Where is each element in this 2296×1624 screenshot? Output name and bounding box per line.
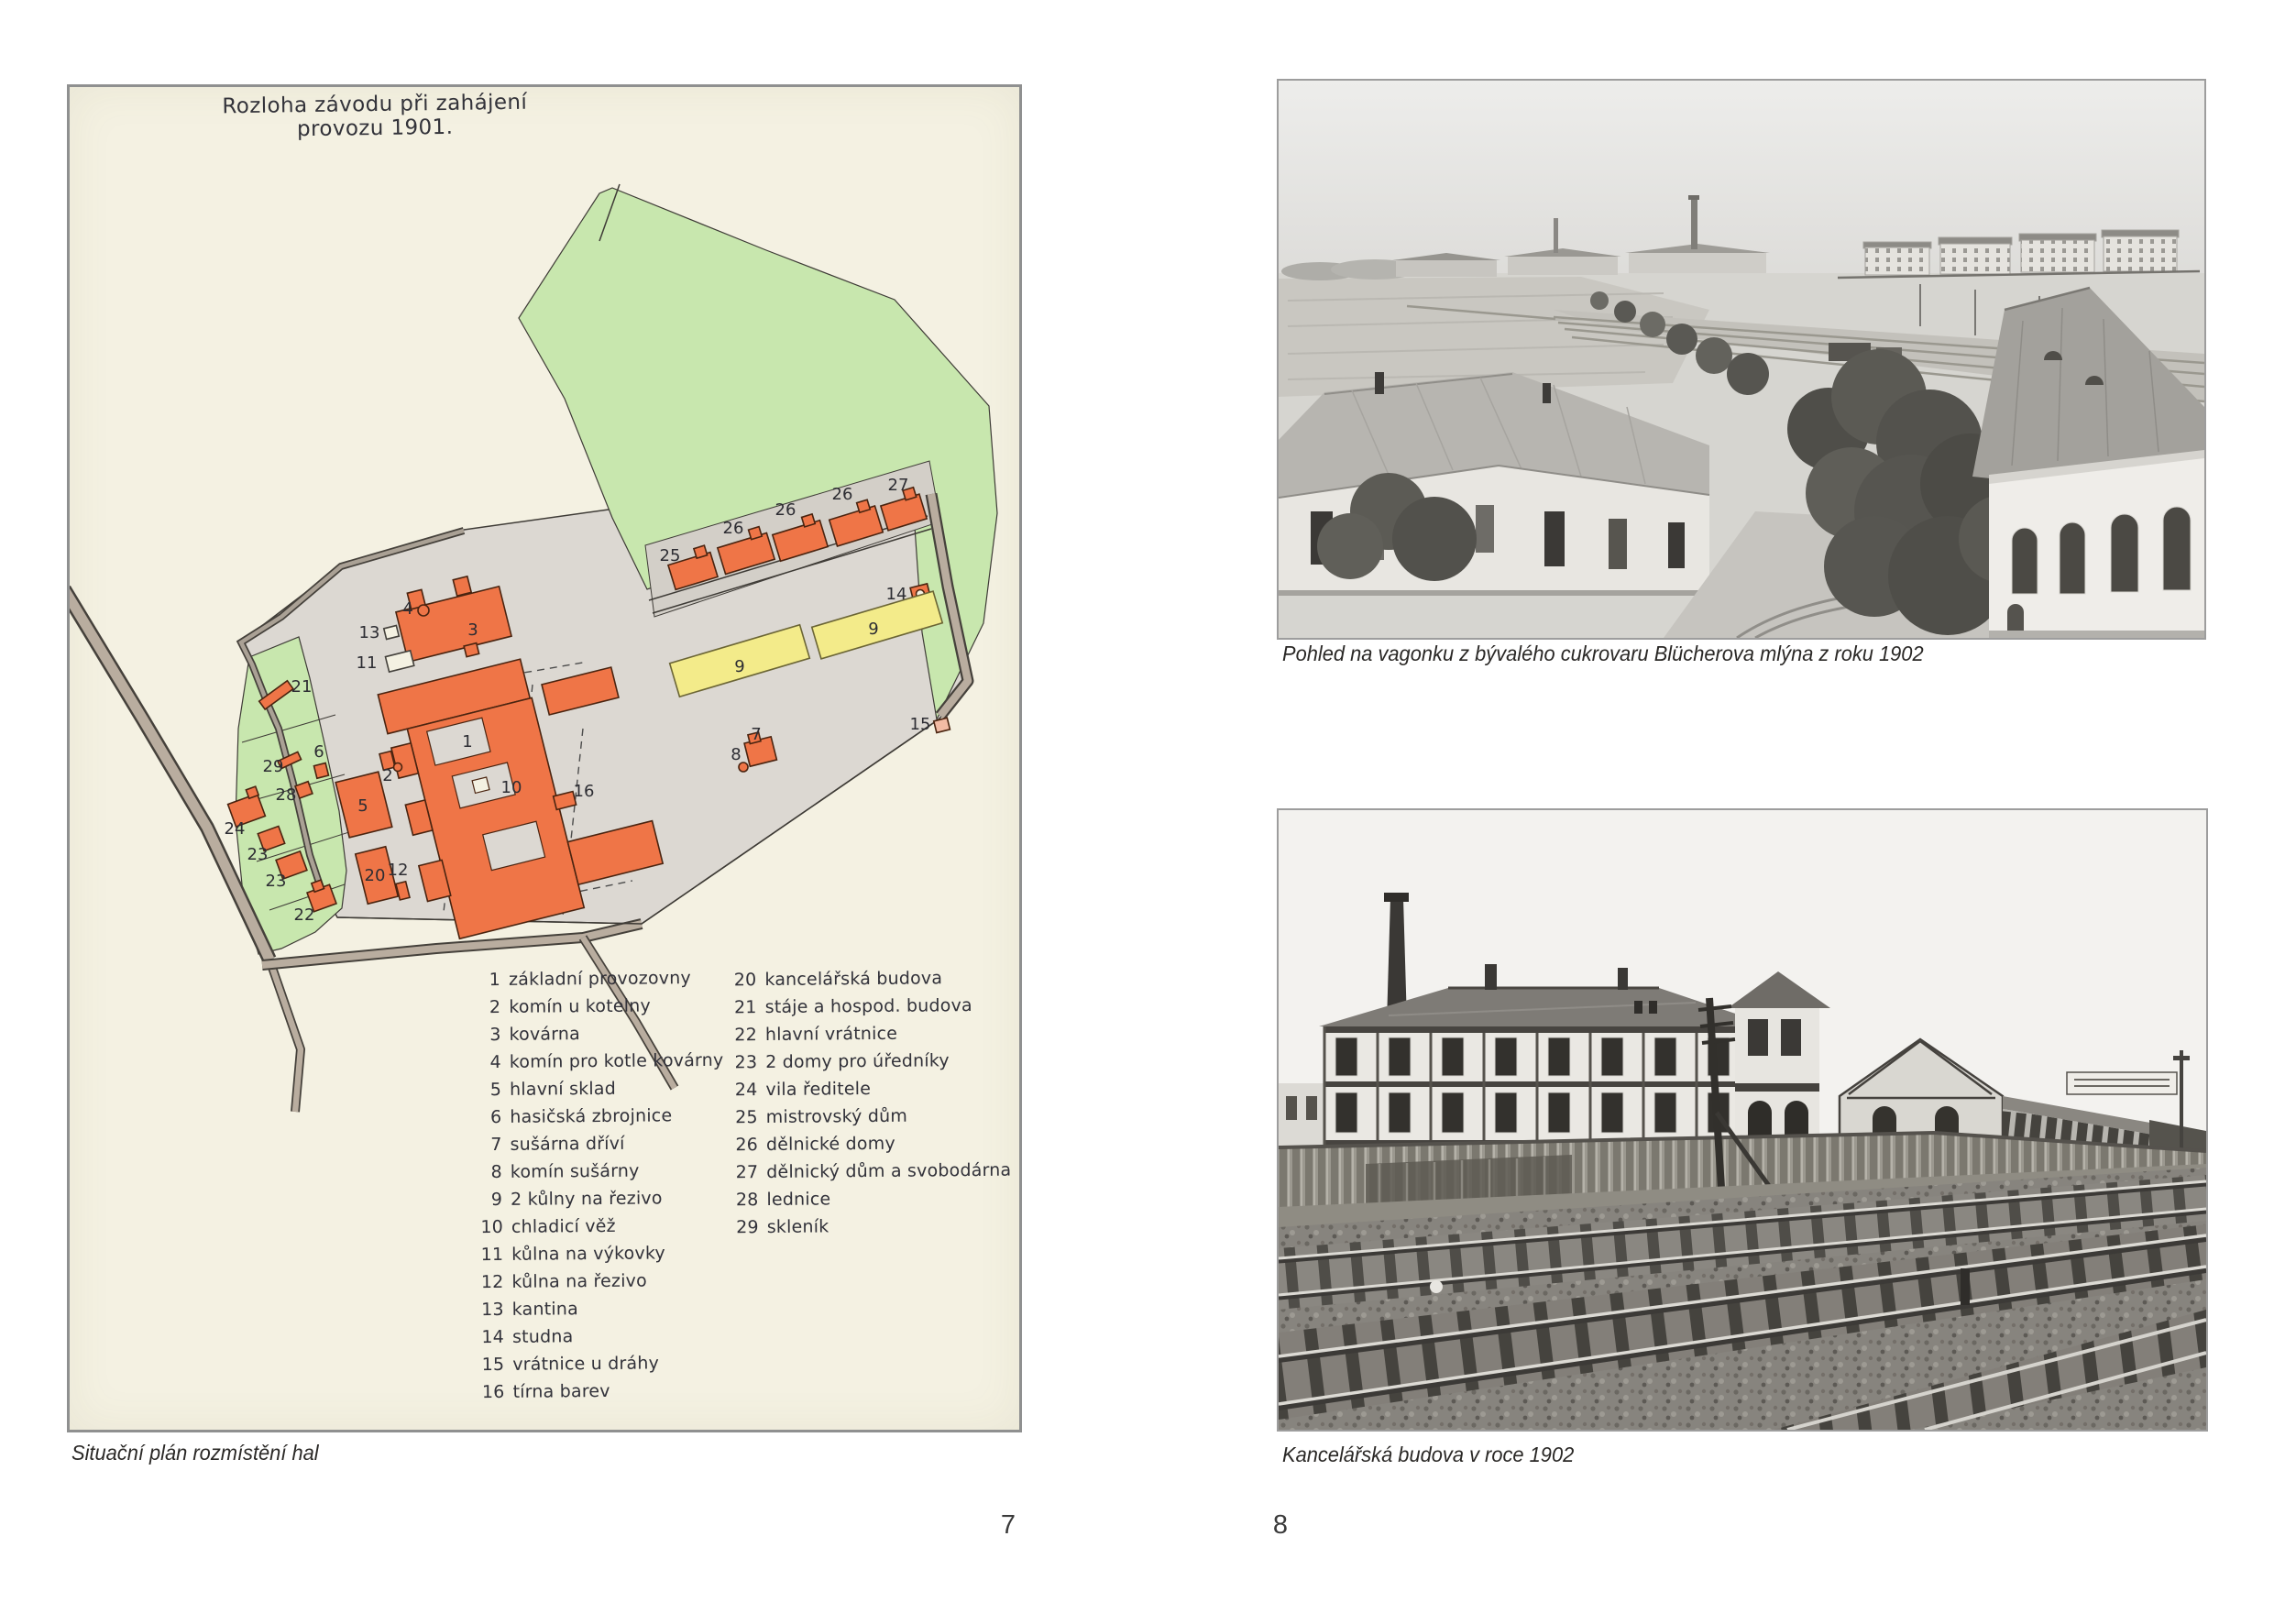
map-number-label: 21 xyxy=(291,677,313,697)
map-number-label: 13 xyxy=(359,623,380,642)
roof-sign xyxy=(2067,1072,2177,1094)
arched-window xyxy=(2060,522,2085,594)
map-number-label: 3 xyxy=(467,620,478,640)
map-number-label: 23 xyxy=(266,872,287,891)
railway-foreground xyxy=(1279,1164,2206,1430)
map-number-label: 29 xyxy=(263,757,284,776)
arched-window xyxy=(2007,604,2024,634)
map-number-label: 20 xyxy=(365,866,386,885)
legend-item: 7sušárna dříví xyxy=(479,1129,724,1158)
map-number-label: 22 xyxy=(294,905,315,925)
map-number-label: 15 xyxy=(910,715,931,734)
map-number-label: 23 xyxy=(247,845,269,864)
page-number-left: 7 xyxy=(994,1510,1022,1541)
page-left: 1234567899101112131415162021222323242526… xyxy=(0,0,1148,1624)
map-number-label: 9 xyxy=(868,620,878,639)
legend-item: 8komín sušárny xyxy=(480,1157,725,1186)
left-annex-building xyxy=(1279,1083,1326,1153)
map-number-label: 7 xyxy=(751,725,761,744)
legend-item: 3kovárna xyxy=(478,1019,723,1048)
photo-office-building-scene xyxy=(1279,810,2206,1430)
plan-legend-right: 20kancelářská budova21stáje a hospod. bu… xyxy=(734,964,1012,1242)
map-number-label: 14 xyxy=(886,585,907,604)
map-number-label: 6 xyxy=(313,742,324,762)
legend-item: 27dělnický dům a svobodárna xyxy=(736,1157,1012,1187)
legend-item: 20kancelářská budova xyxy=(734,964,1010,994)
roof-chimney xyxy=(1485,964,1497,990)
legend-item: 24vila ředitele xyxy=(735,1074,1011,1104)
legend-item: 22hlavní vrátnice xyxy=(734,1019,1010,1049)
page-number-right: 8 xyxy=(1267,1510,1294,1541)
legend-item: 12kůlna na řezivo xyxy=(481,1267,726,1296)
white-stone xyxy=(1430,1280,1443,1293)
map-number-label: 11 xyxy=(357,653,378,673)
legend-item: 92 kůlny na řezivo xyxy=(480,1184,725,1213)
map-number-label: 8 xyxy=(731,745,741,764)
legend-item: 15vrátnice u dráhy xyxy=(482,1349,727,1378)
plan-caption: Situační plán rozmístění hal xyxy=(71,1441,319,1465)
map-number-label: 1 xyxy=(462,732,472,752)
legend-item: 16tírna barev xyxy=(482,1377,727,1406)
legend-item: 10chladicí věž xyxy=(480,1212,725,1241)
map-number-label: 9 xyxy=(734,657,744,676)
photo-office-building xyxy=(1277,808,2208,1432)
arched-window xyxy=(2012,528,2038,594)
gable-window xyxy=(1634,1001,1642,1014)
map-number-label: 24 xyxy=(225,819,246,839)
map-number-label: 2 xyxy=(382,766,392,785)
page-right: Pohled na vagonku z bývalého cukrovaru B… xyxy=(1148,0,2296,1624)
legend-item: 28lednice xyxy=(736,1184,1012,1214)
legend-item: 29skleník xyxy=(736,1212,1012,1242)
map-number-label: 5 xyxy=(357,796,368,816)
legend-item: 26dělnické domy xyxy=(735,1129,1011,1159)
plan-title: Rozloha závodu při zahájení provozu 1901… xyxy=(214,91,536,143)
map-number-label: 27 xyxy=(888,476,909,495)
site-plan-figure: 1234567899101112131415162021222323242526… xyxy=(67,84,1022,1432)
photo-wagon-works xyxy=(1277,79,2206,640)
legend-item: 21stáje a hospod. budova xyxy=(734,992,1010,1022)
legend-item: 1základní provozovny xyxy=(478,964,723,993)
legend-item: 5hlavní sklad xyxy=(479,1074,724,1103)
legend-item: 25mistrovský dům xyxy=(735,1102,1011,1132)
photo-wagon-works-caption: Pohled na vagonku z bývalého cukrovaru B… xyxy=(1282,642,1924,666)
legend-item: 11kůlna na výkovky xyxy=(481,1239,726,1268)
legend-item: 4komín pro kotle kovárny xyxy=(479,1047,724,1076)
legend-item: 14studna xyxy=(481,1322,726,1351)
map-number-label: 16 xyxy=(574,782,595,801)
legend-item: 232 domy pro úředníky xyxy=(734,1047,1010,1077)
map-number-label: 26 xyxy=(775,500,796,520)
legend-item: 13kantina xyxy=(481,1294,726,1323)
map-number-label: 26 xyxy=(832,485,853,504)
legend-item: 2komín u kotelny xyxy=(478,992,723,1021)
photo-office-building-caption: Kancelářská budova v roce 1902 xyxy=(1282,1443,1574,1467)
gable-window xyxy=(1649,1001,1657,1014)
map-number-label: 4 xyxy=(402,599,412,619)
photo-wagon-works-scene xyxy=(1279,81,2204,638)
legend-item: 6hasičská zbrojnice xyxy=(479,1102,724,1131)
roof-chimney xyxy=(1618,968,1628,990)
map-number-label: 25 xyxy=(660,546,681,565)
map-number-label: 26 xyxy=(723,519,744,538)
arched-window xyxy=(2111,514,2138,592)
map-number-label: 12 xyxy=(388,861,409,880)
plan-legend-left: 1základní provozovny2komín u kotelny3kov… xyxy=(478,964,727,1406)
map-number-label: 10 xyxy=(501,778,522,797)
signal-post xyxy=(1961,1268,1970,1305)
map-number-label: 28 xyxy=(276,785,297,805)
arched-window xyxy=(2163,507,2191,590)
